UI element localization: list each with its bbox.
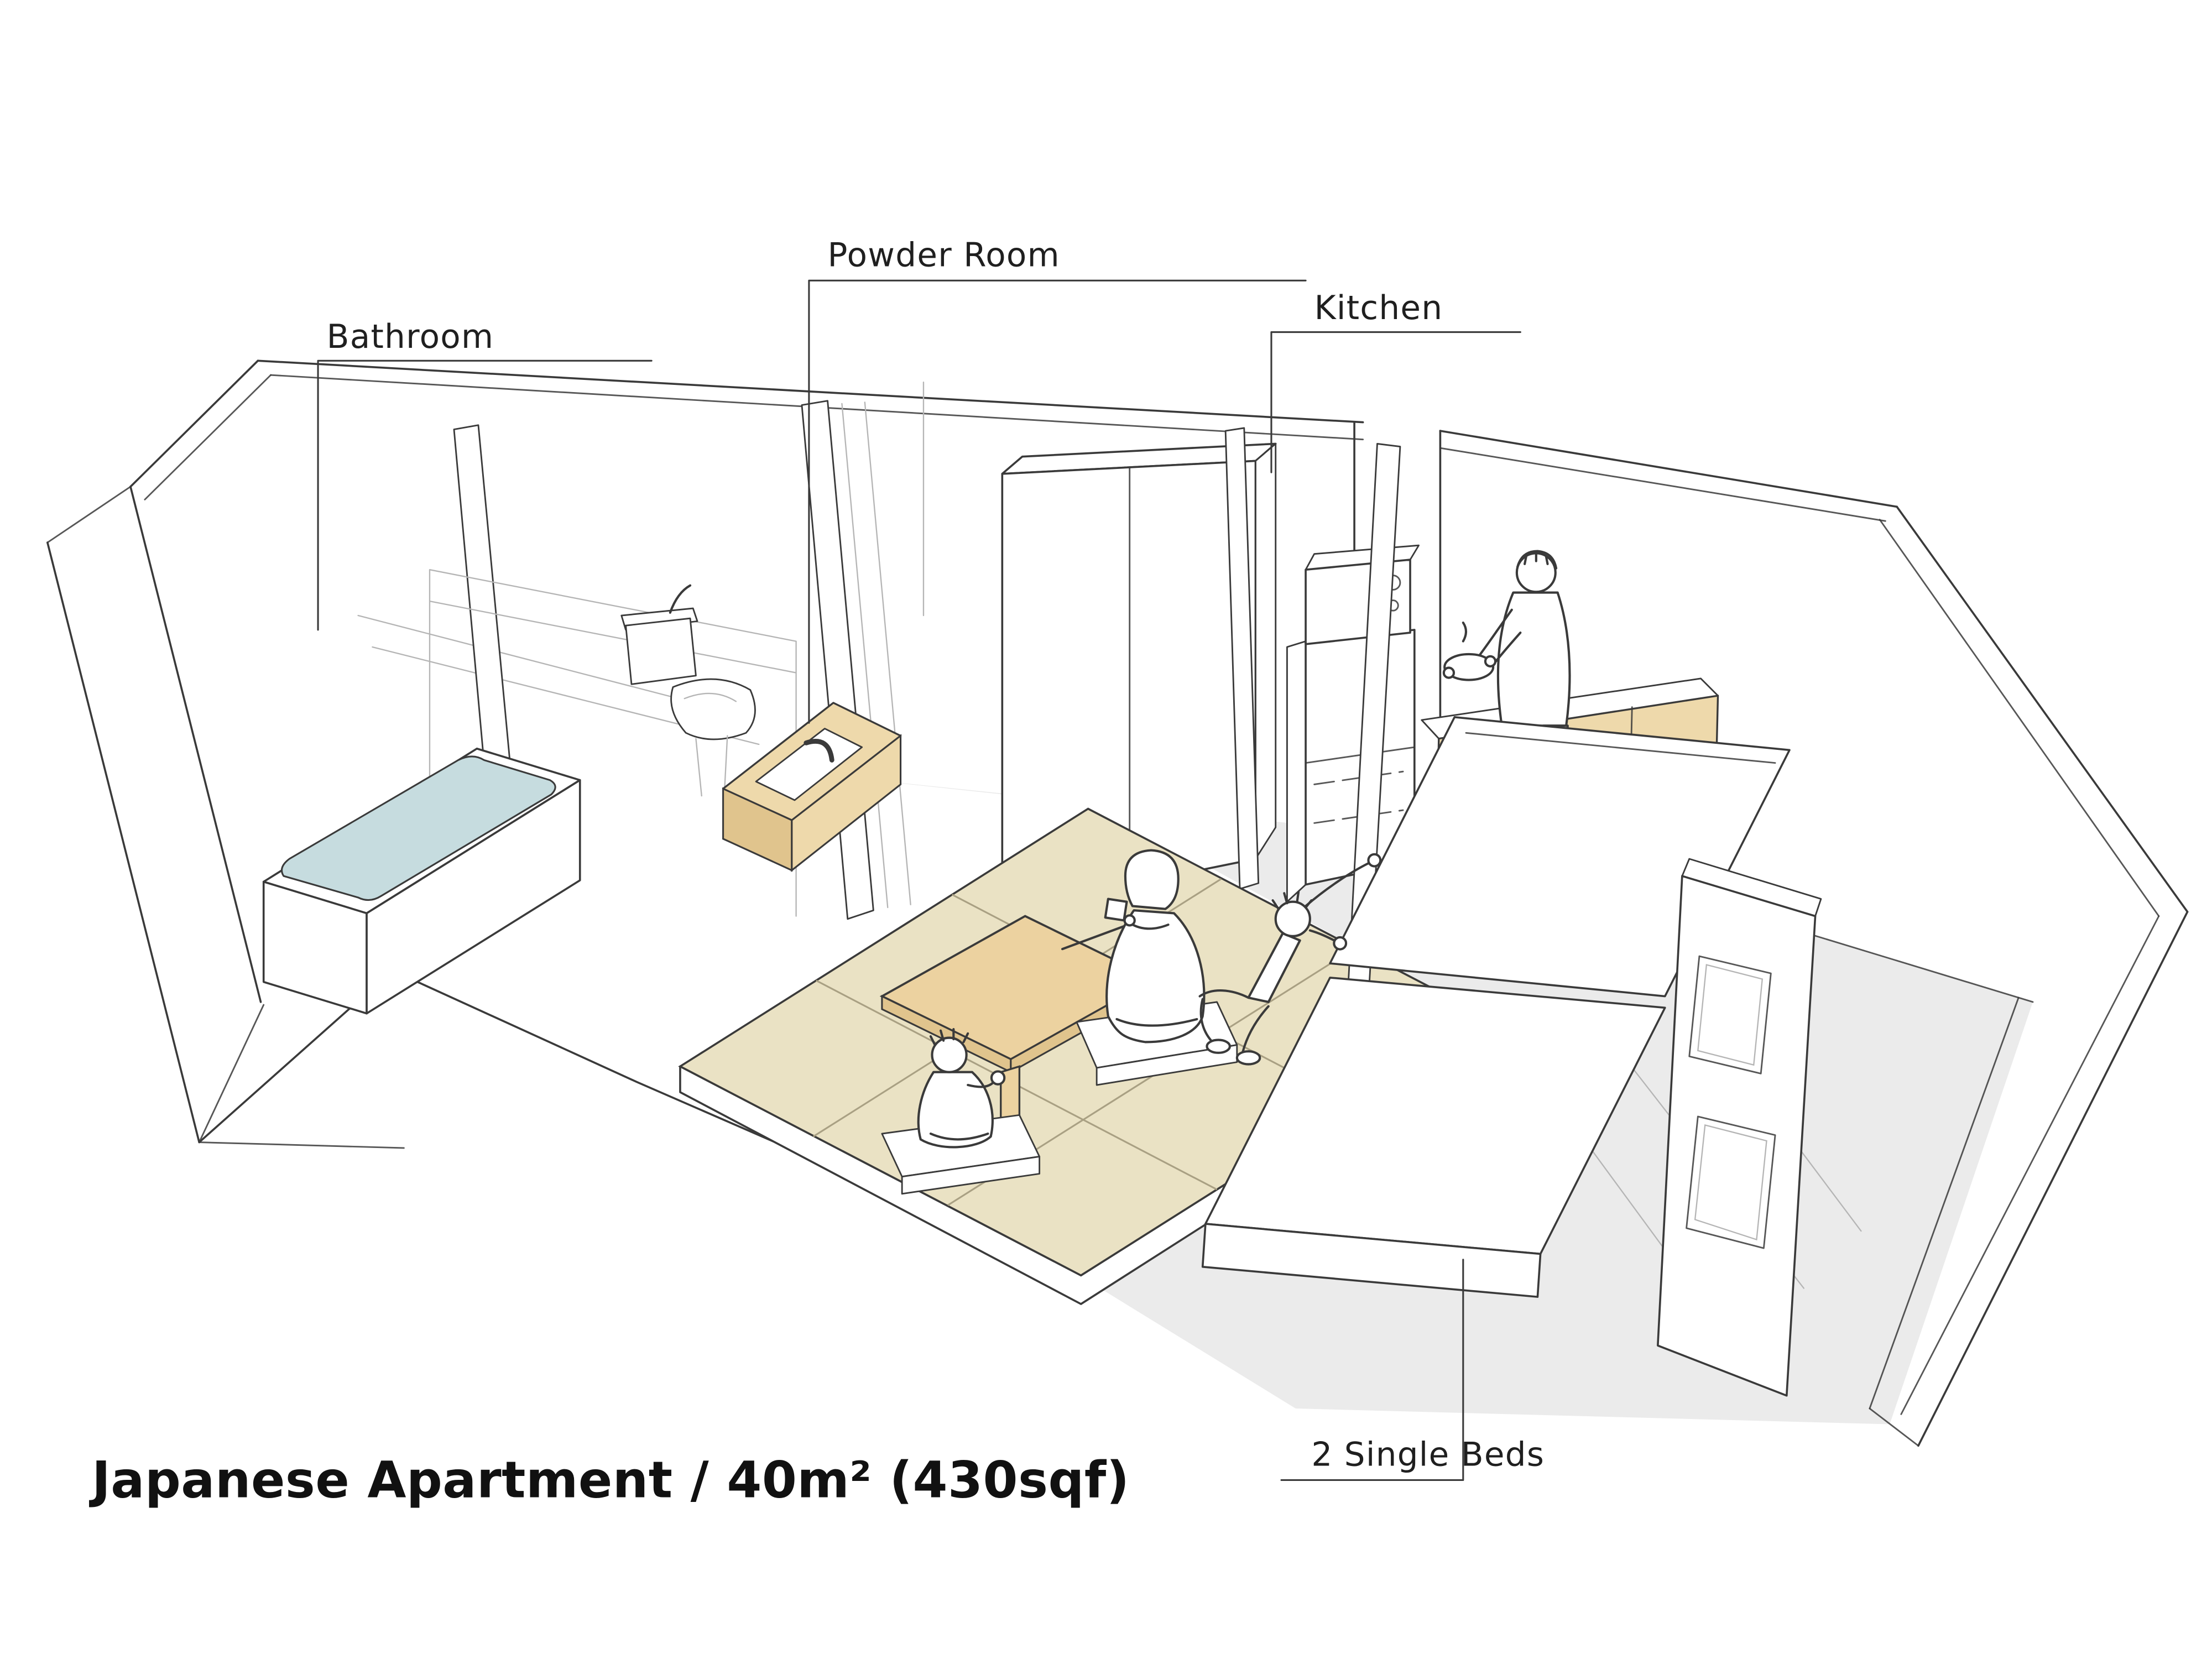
- child-cup: [992, 1071, 1004, 1084]
- bathtub-base-line: [199, 1142, 404, 1148]
- powder-room: [622, 401, 911, 919]
- pot-steam: [1463, 623, 1466, 641]
- east-wall-upper-inner: [1880, 520, 2159, 916]
- west-wall-bottom-join: [199, 1005, 263, 1142]
- microwave-front: [1306, 560, 1410, 644]
- toilet-bowl: [671, 679, 755, 739]
- headboard-face: [1658, 876, 1815, 1396]
- kitchen-label-text: Kitchen: [1314, 289, 1443, 327]
- west-wall-outer-edge: [48, 542, 199, 1142]
- climbing-child-fist-up: [1368, 854, 1380, 867]
- child-head: [932, 1038, 967, 1072]
- toilet: [622, 586, 755, 796]
- powder-room-label-text: Powder Room: [828, 236, 1060, 274]
- apartment-cutaway-drawing: Bathroom Powder Room Kitchen 2 Single Be…: [0, 0, 2212, 1659]
- man-hand-2: [1444, 668, 1454, 678]
- closet-side-face: [1255, 444, 1275, 859]
- bathroom-label-text: Bathroom: [327, 318, 494, 356]
- west-wall-top-edge: [131, 361, 258, 487]
- west-wall-inner-edge: [131, 487, 261, 1002]
- label-kitchen: Kitchen: [1271, 289, 1520, 472]
- bathtub: [199, 749, 580, 1148]
- bedroom: [1200, 444, 1821, 1395]
- east-wall-upper-edge: [1897, 507, 2187, 912]
- west-wall-top-inner: [145, 375, 271, 499]
- climbing-child-shoe-1: [1207, 1040, 1229, 1053]
- west-wall-top-join: [48, 487, 131, 542]
- east-wall-bottom-join: [1870, 1408, 1918, 1446]
- woman-hand: [1125, 915, 1135, 925]
- illustration-page: Bathroom Powder Room Kitchen 2 Single Be…: [0, 0, 2212, 1659]
- man-hand: [1485, 656, 1495, 666]
- northeast-wall-top-inner: [1440, 448, 1885, 521]
- woman-head-hair: [1125, 851, 1178, 909]
- northeast-wall-top: [1440, 431, 1897, 507]
- microwave: [1306, 545, 1418, 644]
- climbing-child-fist-low: [1334, 937, 1346, 950]
- beds-label-text: 2 Single Beds: [1311, 1436, 1545, 1474]
- woman-teacup: [1105, 899, 1127, 921]
- toilet-tank: [626, 618, 696, 684]
- climbing-child-shoe-2: [1237, 1051, 1260, 1064]
- page-title: Japanese Apartment / 40m² (430sqf): [88, 1452, 1130, 1510]
- fridge-side-face: [1287, 641, 1306, 902]
